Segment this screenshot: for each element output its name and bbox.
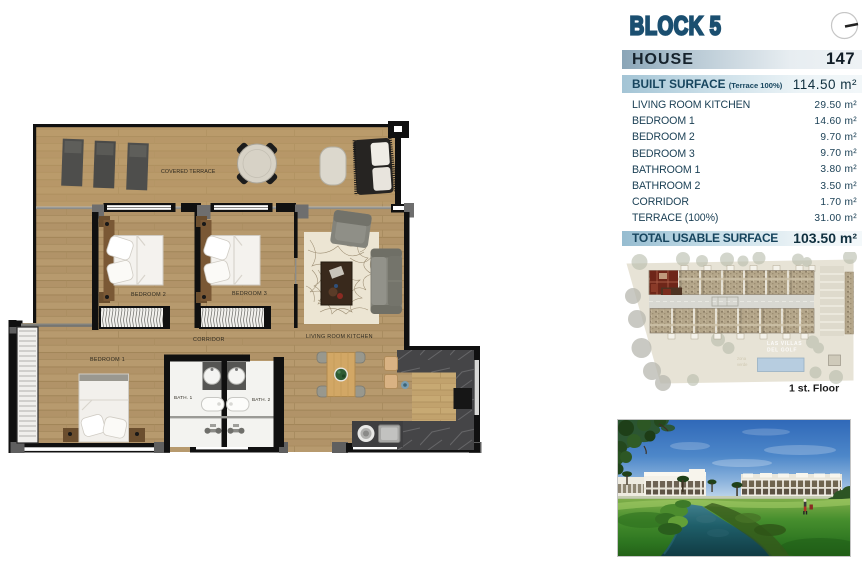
svg-text:DEL GOLF: DEL GOLF	[767, 348, 797, 354]
svg-text:BLOCK 5: BLOCK 5	[630, 11, 722, 40]
svg-text:LIVING ROOM KITCHEN: LIVING ROOM KITCHEN	[306, 334, 373, 340]
svg-text:1 st. Floor: 1 st. Floor	[789, 383, 839, 395]
svg-text:BEDROOM 1: BEDROOM 1	[90, 357, 125, 363]
svg-text:BATH. 1: BATH. 1	[174, 395, 193, 400]
svg-text:BEDROOM 3: BEDROOM 3	[232, 291, 267, 297]
svg-text:CORRIDOR: CORRIDOR	[193, 337, 225, 343]
svg-text:verde: verde	[737, 362, 748, 367]
svg-text:LAS VILLAS: LAS VILLAS	[767, 341, 802, 347]
svg-text:zona: zona	[737, 356, 747, 361]
svg-text:BEDROOM 2: BEDROOM 2	[131, 292, 166, 298]
svg-text:BATH. 2: BATH. 2	[252, 397, 271, 402]
svg-text:COVERED TERRACE: COVERED TERRACE	[161, 169, 216, 175]
